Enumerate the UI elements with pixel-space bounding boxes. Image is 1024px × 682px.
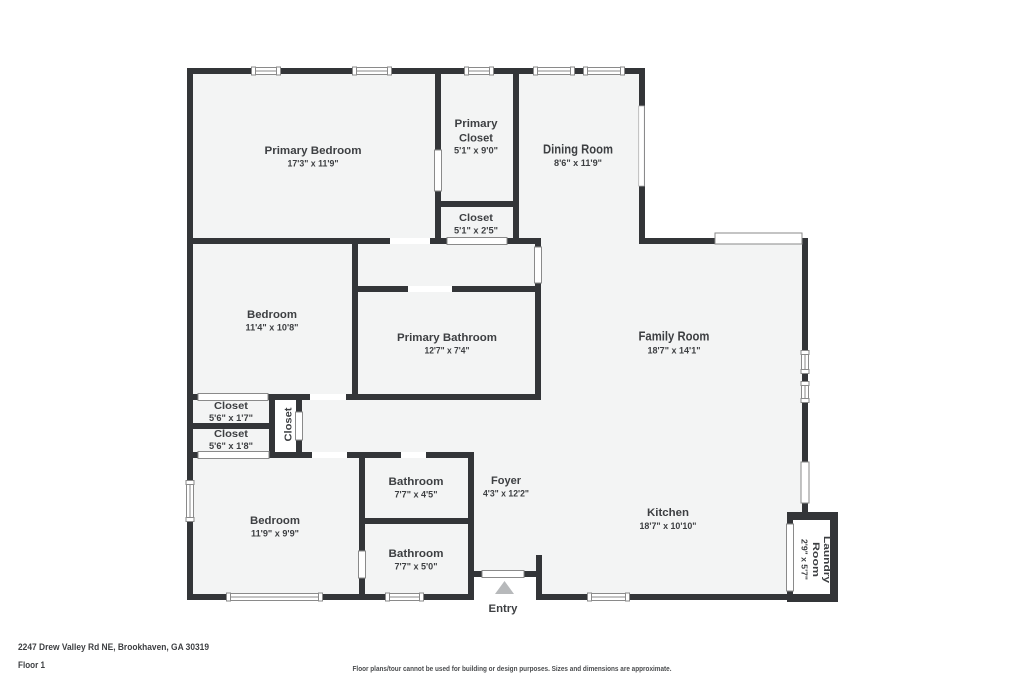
svg-text:12'7" x 7'4": 12'7" x 7'4" [425,346,470,357]
svg-text:Room: Room [810,542,821,577]
svg-text:5'6" x 1'7": 5'6" x 1'7" [209,413,253,424]
svg-text:11'9" x 9'9": 11'9" x 9'9" [251,529,299,540]
svg-text:Dining Room: Dining Room [543,143,613,157]
svg-text:18'7" x 10'10": 18'7" x 10'10" [640,521,697,532]
svg-text:Floor plans/tour cannot be use: Floor plans/tour cannot be used for buil… [353,666,672,673]
svg-text:2247 Drew Valley Rd NE, Brookh: 2247 Drew Valley Rd NE, Brookhaven, GA 3… [18,642,209,653]
svg-text:4'3" x 12'2": 4'3" x 12'2" [483,489,529,500]
svg-text:Laundry: Laundry [821,536,832,584]
svg-text:17'3" x 11'9": 17'3" x 11'9" [288,159,339,170]
svg-text:Bathroom: Bathroom [389,476,444,488]
svg-text:Primary Bedroom: Primary Bedroom [265,145,362,157]
svg-text:Closet: Closet [459,212,494,224]
svg-text:2'9" x 5'7": 2'9" x 5'7" [800,539,810,580]
svg-text:Bedroom: Bedroom [247,309,297,321]
svg-text:Entry: Entry [489,603,519,615]
svg-text:Closet: Closet [214,400,249,412]
svg-text:7'7" x 5'0": 7'7" x 5'0" [395,562,438,573]
svg-text:5'6" x 1'8": 5'6" x 1'8" [209,441,253,452]
svg-text:7'7" x 4'5": 7'7" x 4'5" [395,490,438,501]
svg-text:Closet: Closet [214,428,249,440]
svg-text:11'4" x 10'8": 11'4" x 10'8" [246,323,299,334]
svg-text:Bedroom: Bedroom [250,515,300,527]
svg-text:18'7" x 14'1": 18'7" x 14'1" [648,346,701,357]
svg-text:Foyer: Foyer [491,475,522,487]
svg-text:5'1" x 2'5": 5'1" x 2'5" [454,226,498,237]
svg-text:Family Room: Family Room [639,330,710,344]
svg-text:Closet: Closet [459,133,493,145]
svg-text:8'6" x 11'9": 8'6" x 11'9" [554,158,602,169]
svg-text:Primary: Primary [455,118,499,130]
svg-text:5'1" x 9'0": 5'1" x 9'0" [454,146,498,157]
svg-text:Bathroom: Bathroom [389,548,444,560]
svg-text:Primary Bathroom: Primary Bathroom [397,332,497,344]
svg-text:Kitchen: Kitchen [647,507,689,519]
svg-text:Closet: Closet [283,407,295,442]
svg-text:Floor 1: Floor 1 [18,660,46,671]
